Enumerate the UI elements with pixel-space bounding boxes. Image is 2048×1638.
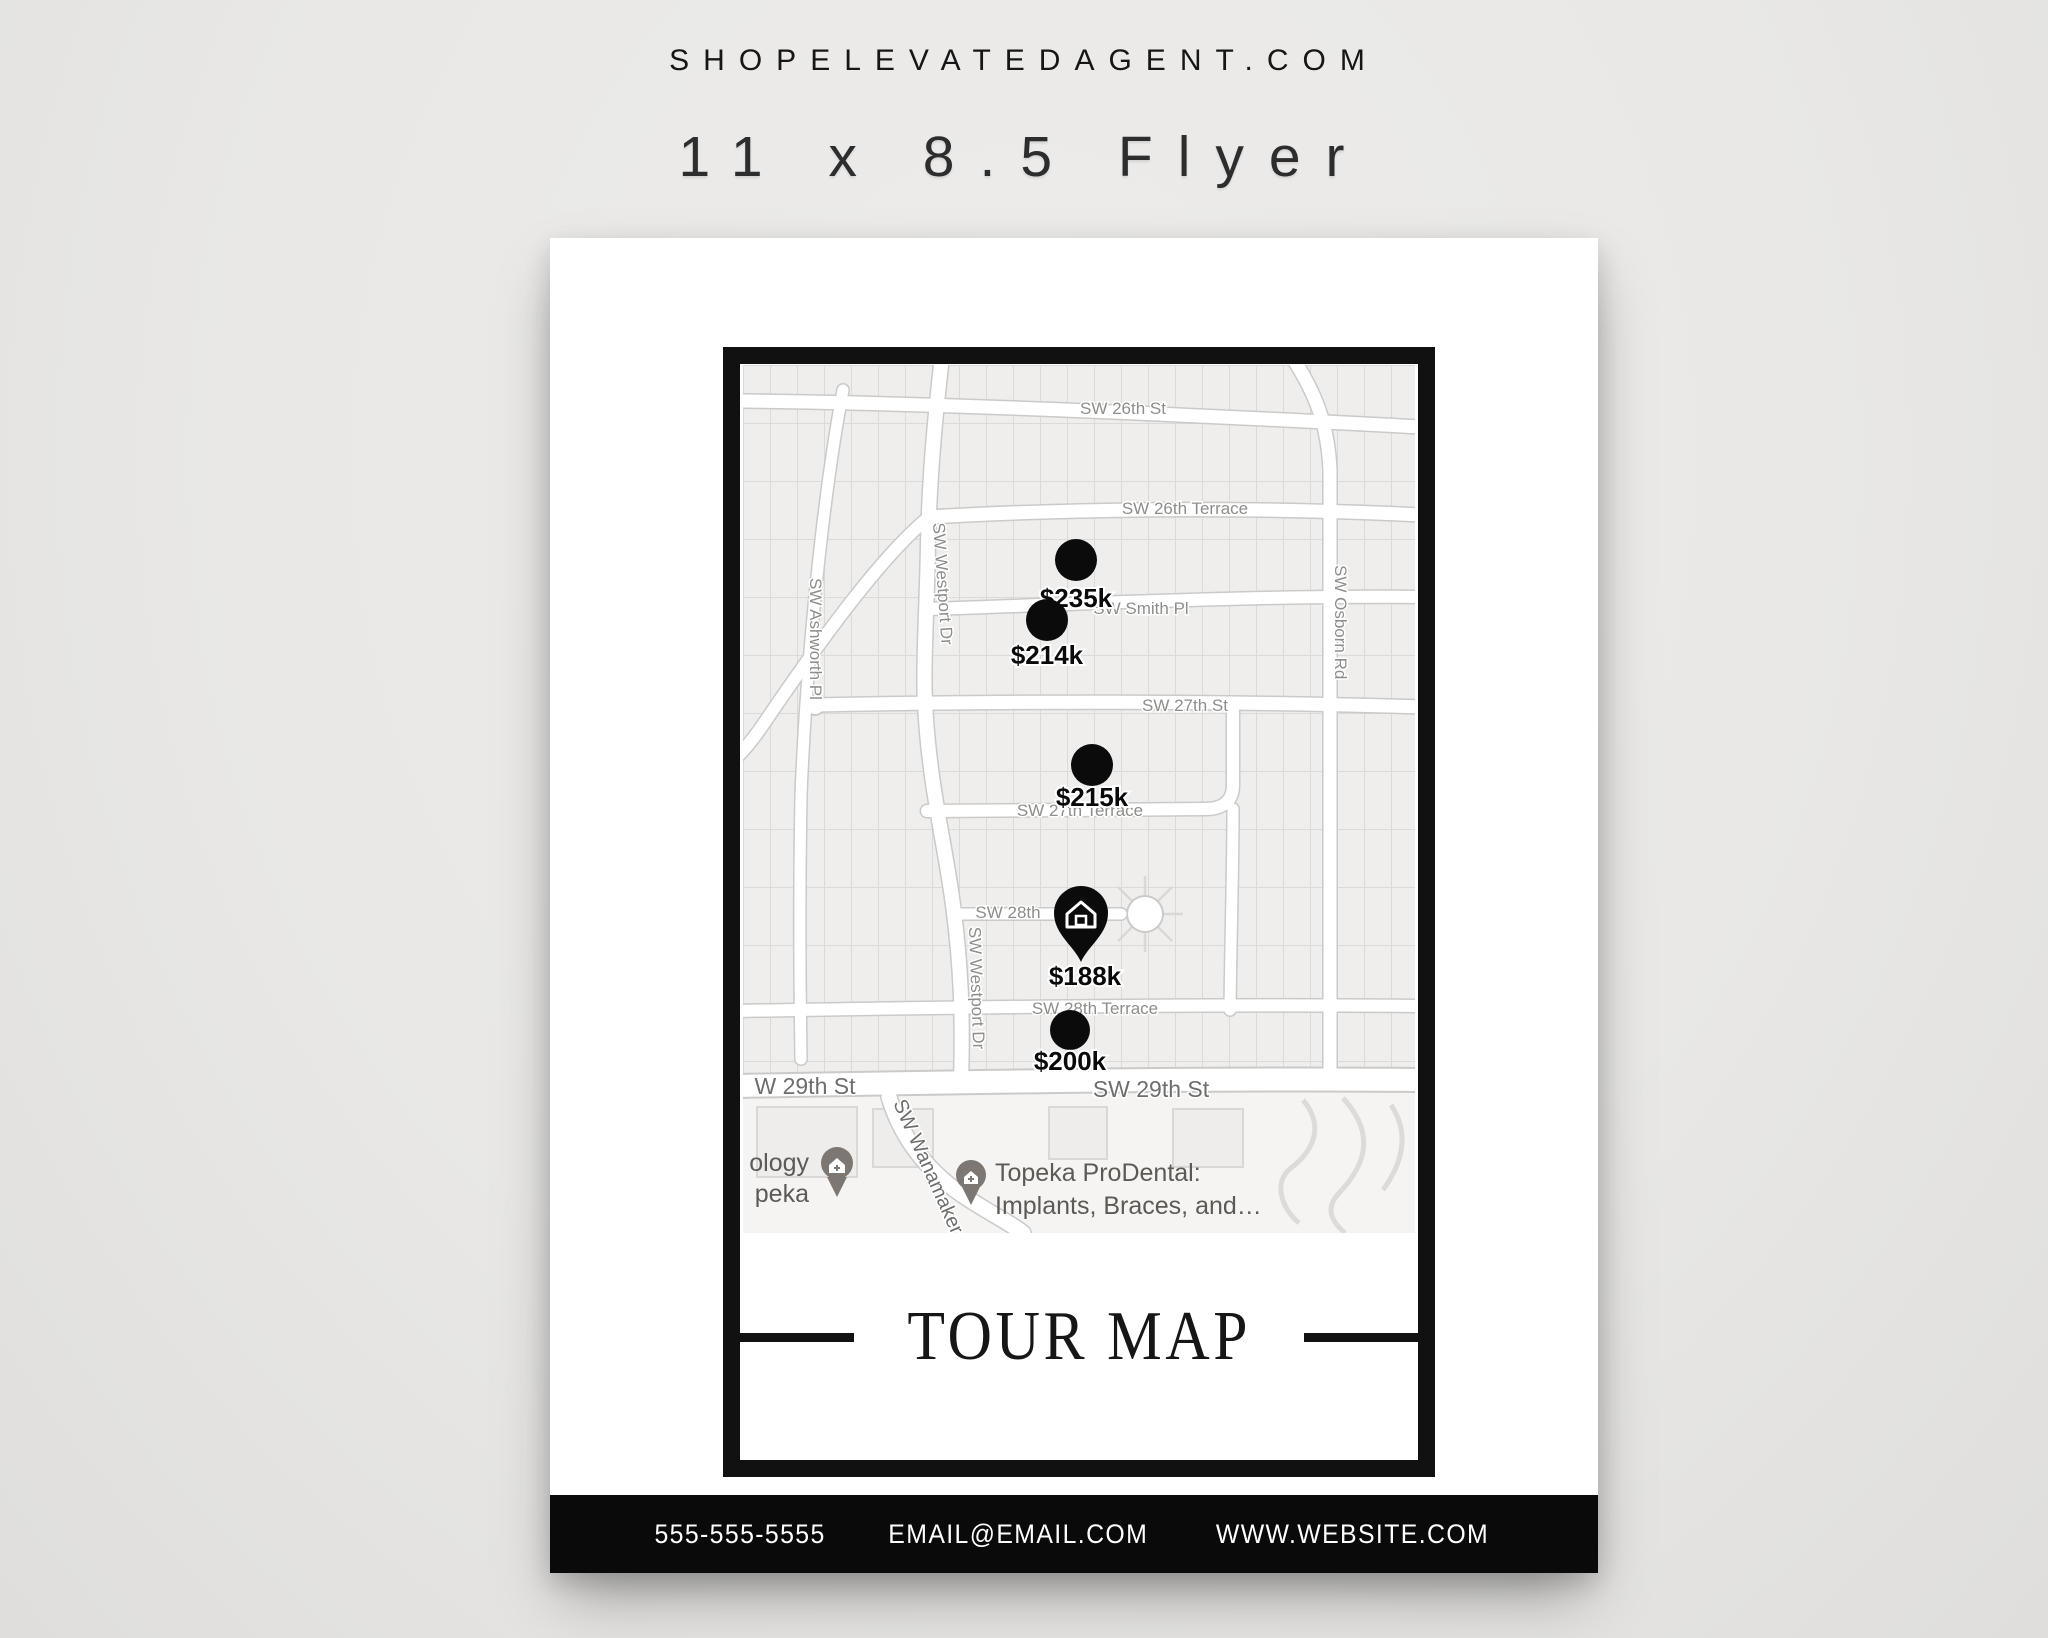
listing-dot-marker bbox=[1026, 599, 1068, 641]
map-frame: SW 26th St SW 26th Terrace SW Smith Pl S… bbox=[723, 347, 1435, 1477]
street-label: SW 26th St bbox=[1080, 399, 1166, 418]
flyer-page: SW 26th St SW 26th Terrace SW Smith Pl S… bbox=[550, 238, 1598, 1573]
listing-dot-marker bbox=[1050, 1010, 1090, 1050]
listing-dot-marker bbox=[1071, 744, 1113, 786]
listing-dot-marker bbox=[1055, 539, 1097, 581]
tour-map-image: SW 26th St SW 26th Terrace SW Smith Pl S… bbox=[743, 365, 1415, 1233]
tour-map-title: TOUR MAP bbox=[907, 1297, 1251, 1377]
tour-map-title-row: TOUR MAP bbox=[740, 1297, 1418, 1377]
poi-label-dental: Implants, Braces, and… bbox=[995, 1192, 1262, 1220]
listing-price-label: $215k bbox=[1056, 782, 1129, 812]
poi-label-clipped: ology bbox=[749, 1149, 809, 1177]
poi-label-dental: Topeka ProDental: bbox=[995, 1159, 1201, 1187]
street-label: SW Osborn Rd bbox=[1331, 565, 1350, 679]
contact-website: WWW.WEBSITE.COM bbox=[1216, 1519, 1489, 1550]
street-label: SW Ashworth Pl bbox=[806, 578, 825, 700]
listing-price-label: $200k bbox=[1034, 1046, 1107, 1076]
contact-email: EMAIL@EMAIL.COM bbox=[889, 1519, 1149, 1550]
site-url: SHOPELEVATEDAGENT.COM bbox=[0, 44, 2048, 78]
street-label: W 29th St bbox=[755, 1073, 857, 1099]
street-label: SW 28th Terrace bbox=[1032, 999, 1158, 1018]
left-dash-rule bbox=[740, 1333, 854, 1342]
right-dash-rule bbox=[1304, 1333, 1418, 1342]
street-label: SW 26th Terrace bbox=[1122, 499, 1248, 518]
mockup-stage: SHOPELEVATEDAGENT.COM 11 x 8.5 Flyer bbox=[0, 0, 2048, 1638]
contact-phone: 555-555-5555 bbox=[655, 1519, 826, 1550]
poi-label-clipped: peka bbox=[755, 1180, 809, 1208]
product-title: 11 x 8.5 Flyer bbox=[0, 124, 2048, 190]
contact-bar: 555-555-5555 EMAIL@EMAIL.COM WWW.WEBSITE… bbox=[550, 1495, 1598, 1573]
listing-price-label: $214k bbox=[1011, 640, 1084, 670]
street-label: SW 27th St bbox=[1142, 696, 1228, 715]
street-label: SW 28th bbox=[975, 903, 1040, 922]
listing-price-label: $188k bbox=[1049, 961, 1122, 991]
street-label: SW 29th St bbox=[1093, 1076, 1210, 1102]
